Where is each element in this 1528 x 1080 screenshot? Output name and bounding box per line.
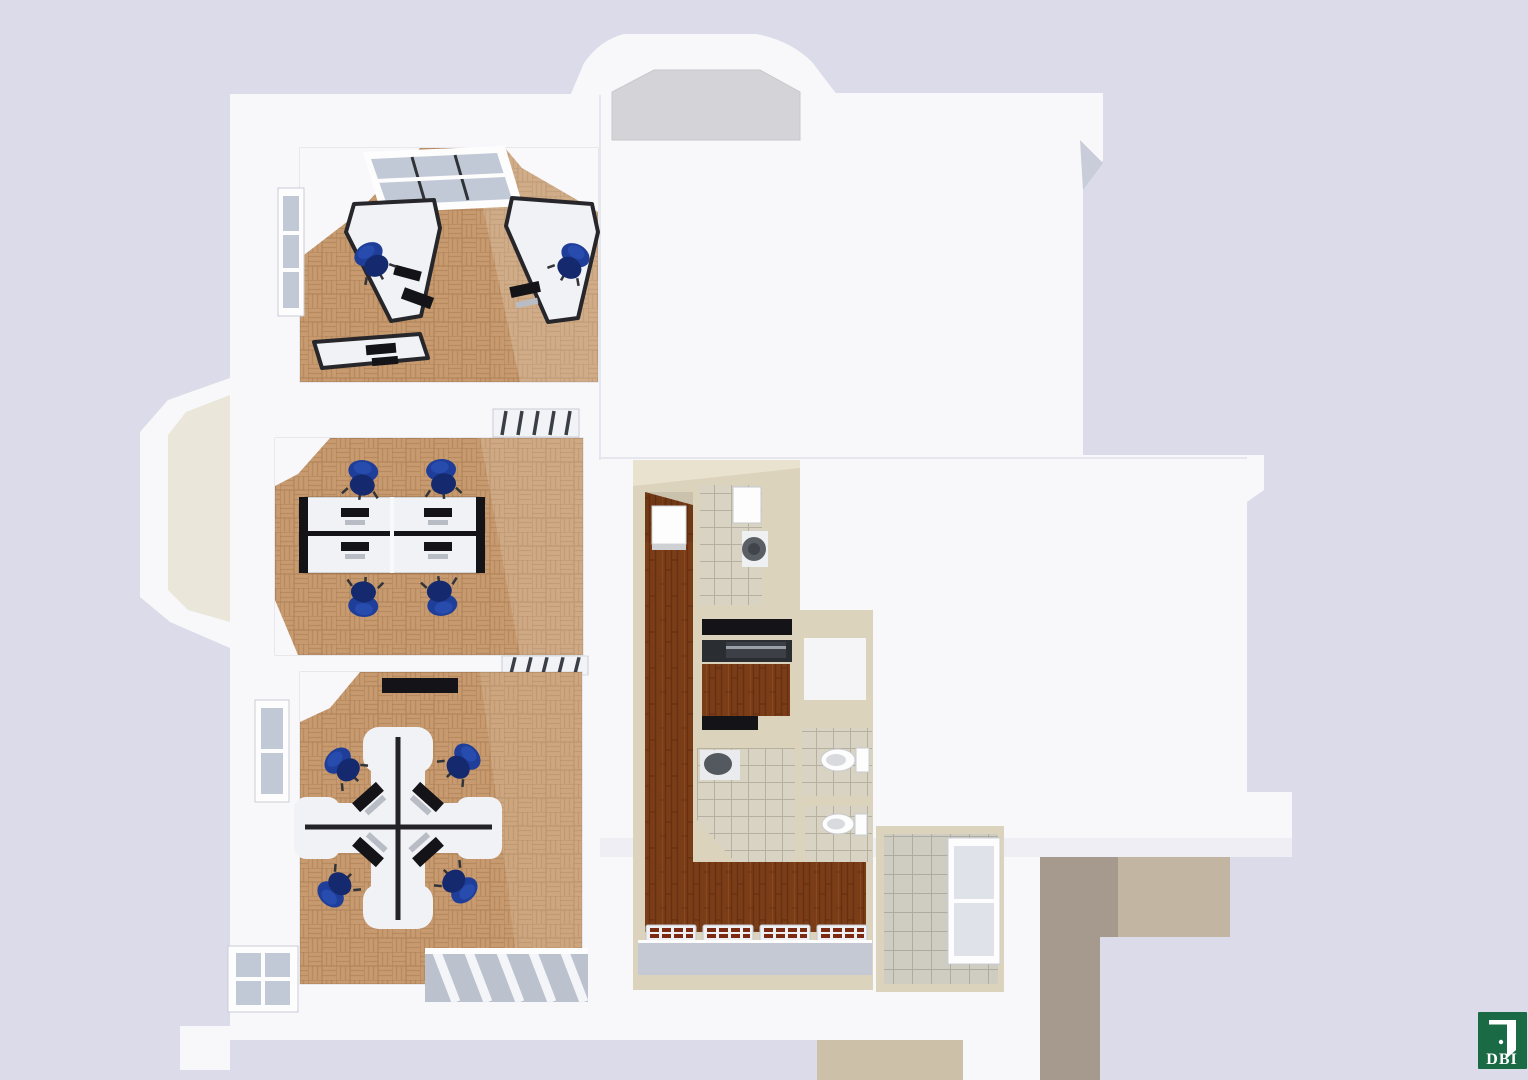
masonry-wall-lit <box>1118 857 1230 937</box>
lower-cabinet <box>702 716 758 730</box>
corridor-cabinet <box>652 506 686 550</box>
utility-room <box>884 834 1000 984</box>
floor-plan-render: DBI <box>0 0 1528 1080</box>
toilet-seat <box>827 819 845 830</box>
top-bay-roof <box>612 70 800 140</box>
glazed-partition <box>493 409 579 437</box>
upper-shelf <box>702 619 792 635</box>
left-bay-roof <box>168 395 230 622</box>
office-top <box>278 146 598 382</box>
wall-screen <box>382 678 458 693</box>
dbi-logo-text: DBI <box>1486 1051 1517 1068</box>
office-middle <box>275 438 583 655</box>
toilet-tank <box>856 748 869 772</box>
utility-window <box>948 838 1000 964</box>
kitchenette-floor <box>702 664 790 716</box>
left-wall-window <box>278 188 304 316</box>
masonry-block <box>817 1040 963 1080</box>
upper-right-block <box>600 93 1103 460</box>
wc-1 <box>802 728 872 796</box>
dbi-logo: DBI <box>1478 1012 1527 1069</box>
water-heater <box>733 487 761 523</box>
appliance <box>726 642 786 658</box>
toilet-seat <box>826 754 846 766</box>
appliance-trim <box>726 646 786 649</box>
bottom-strip <box>963 1040 1048 1080</box>
skylight-grid <box>425 948 588 1002</box>
desk-cluster-2x2 <box>299 497 485 573</box>
bathroom <box>700 485 768 605</box>
left-wall-window-upper <box>255 700 289 802</box>
shaft-room <box>804 638 866 700</box>
basin-drain <box>748 543 760 555</box>
toilet-tank <box>855 814 867 835</box>
masonry-leg <box>1040 937 1100 1080</box>
window-sill <box>638 942 872 975</box>
sill-edge <box>638 940 872 943</box>
wc-2 <box>805 806 872 862</box>
left-wall-window-lower <box>228 946 298 1012</box>
masonry-wall-shaded <box>1040 857 1118 937</box>
left-foot <box>180 1026 230 1070</box>
washbasin <box>704 753 732 775</box>
